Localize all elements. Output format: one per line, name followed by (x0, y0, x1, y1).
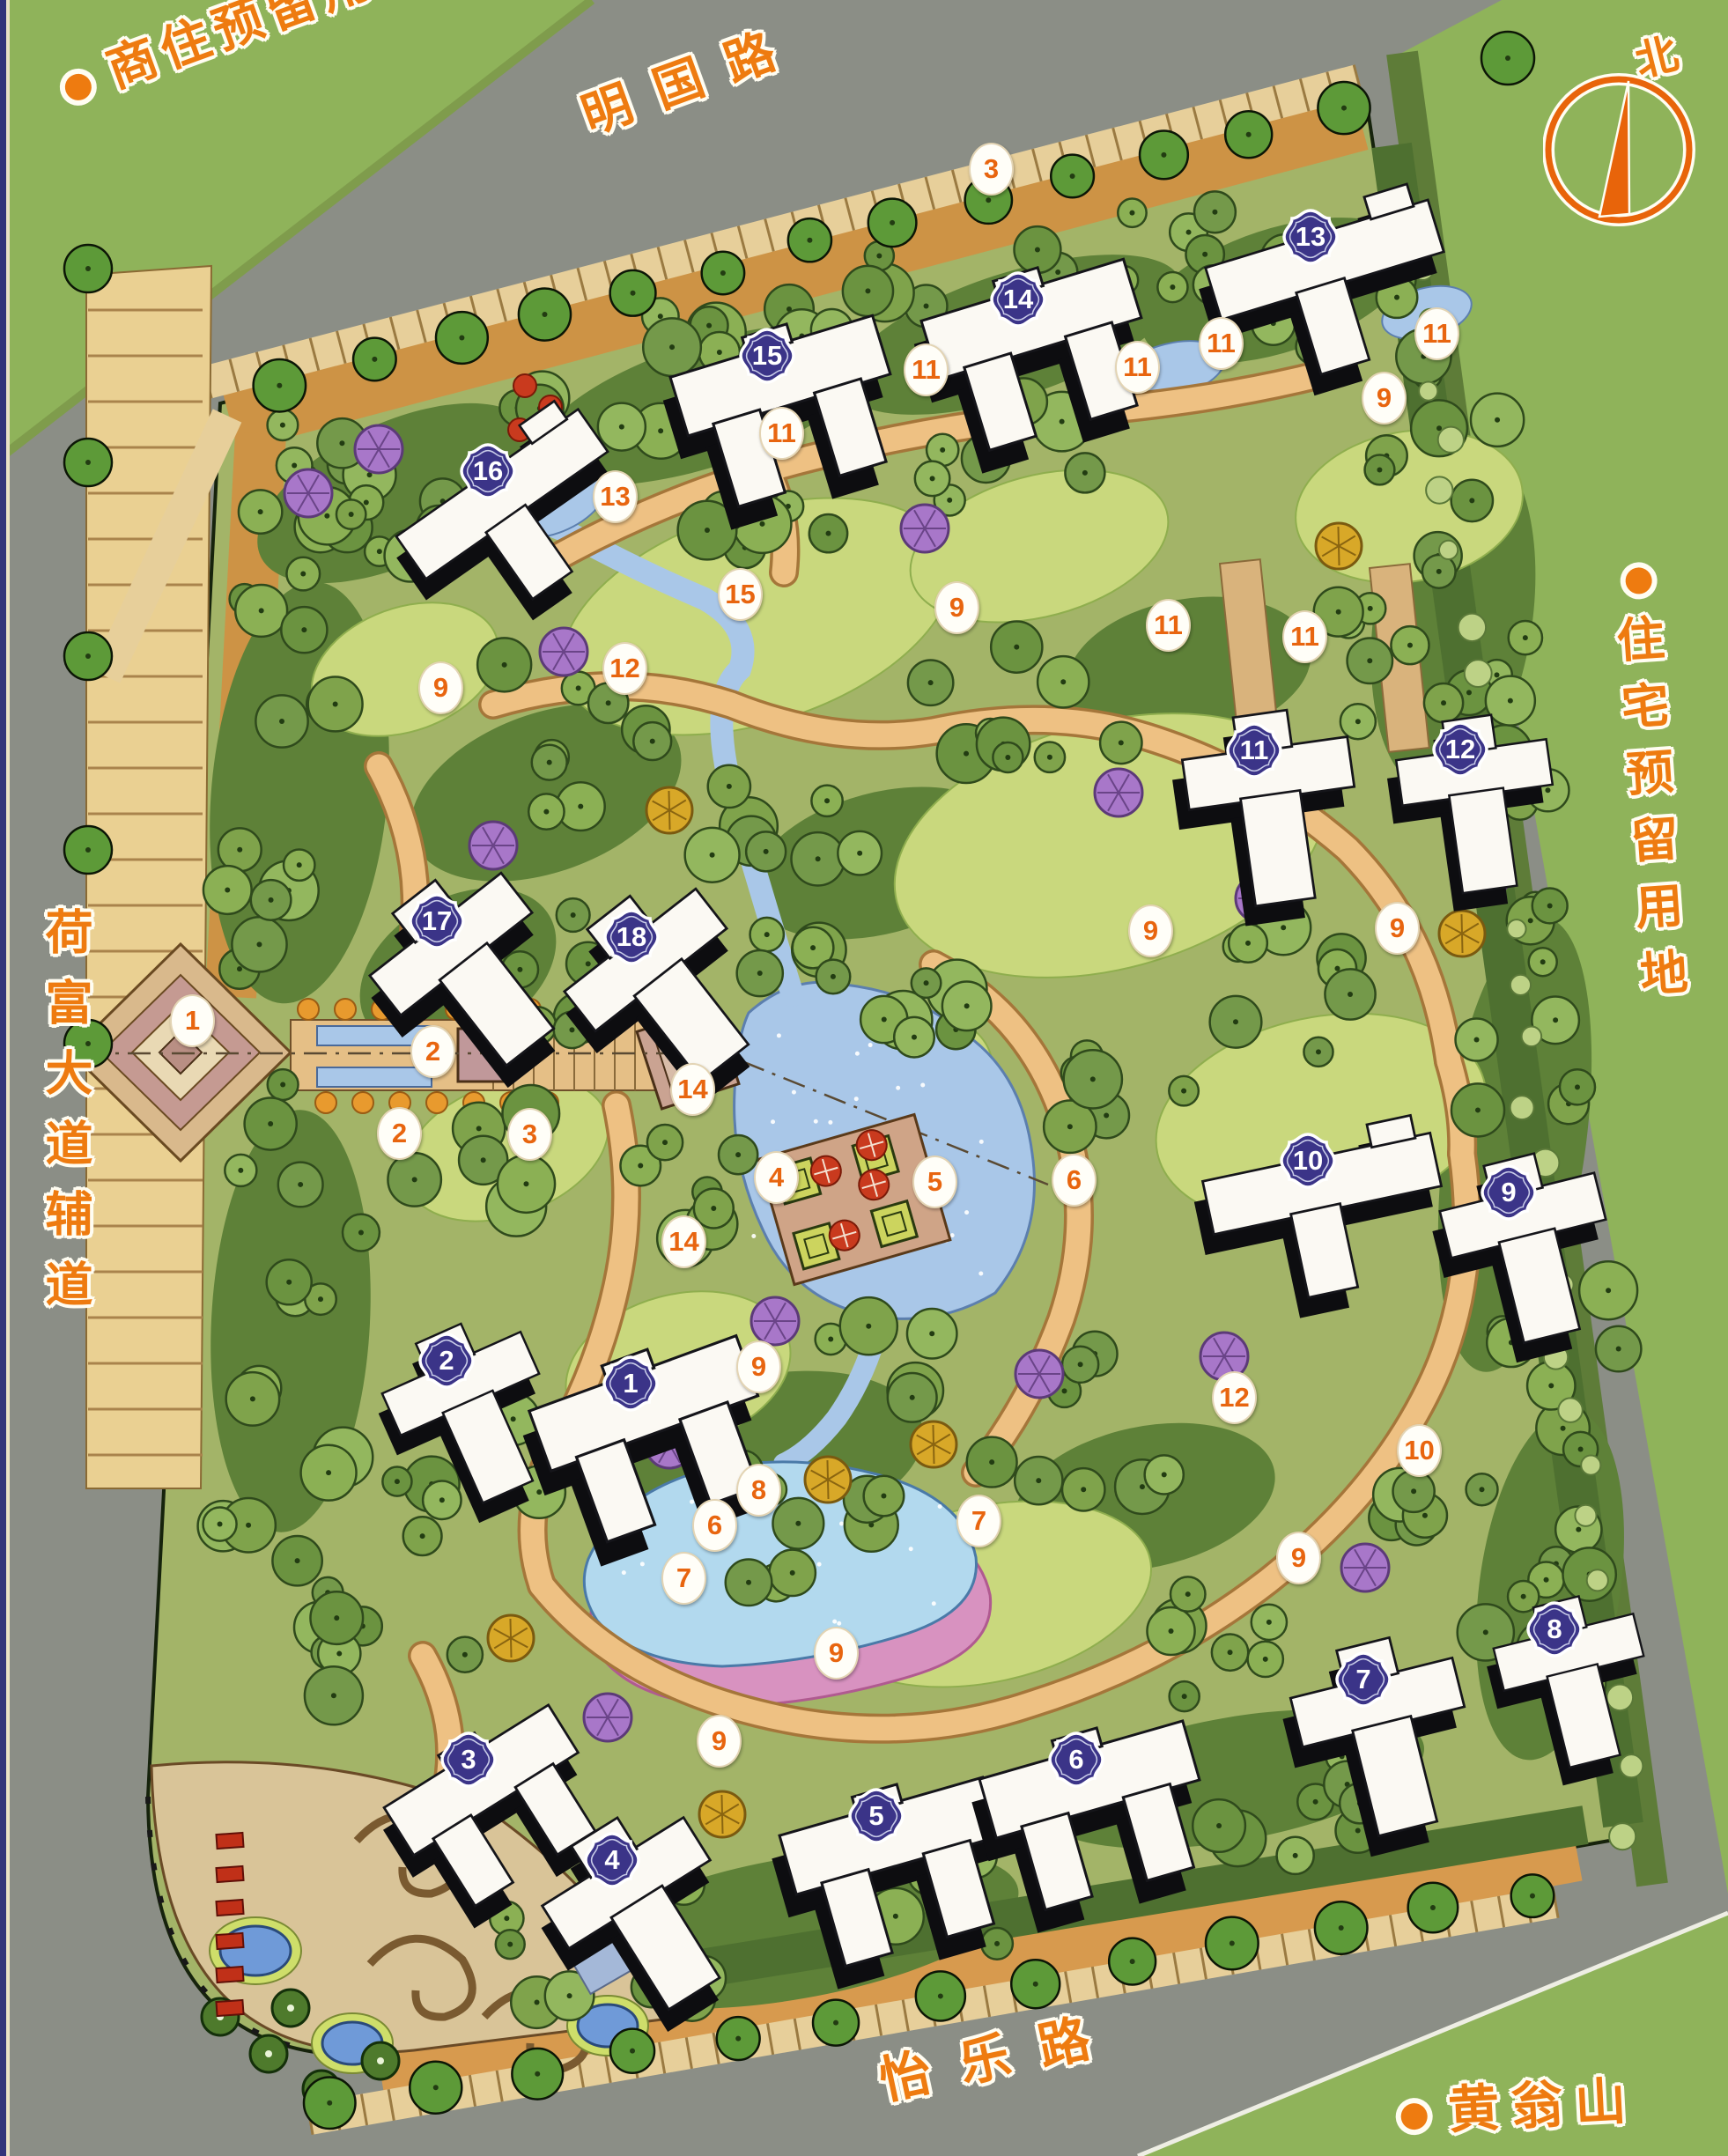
legend-callout-5: 5 (912, 1156, 957, 1208)
legend-callout-9: 9 (697, 1715, 742, 1768)
legend-callout-11: 11 (1282, 610, 1327, 663)
legend-callout-9: 9 (418, 661, 463, 714)
area-label-residential-reserve: 住宅预留用地 (1596, 557, 1697, 1017)
legend-callout-11: 11 (1115, 341, 1160, 394)
building-number: 2 (416, 1330, 477, 1392)
north-compass: 北 (1543, 19, 1702, 240)
building-number: 12 (1429, 719, 1491, 780)
building-badge-7: 7 (1333, 1649, 1394, 1710)
legend-callout-10: 10 (1397, 1424, 1442, 1477)
bullet-icon (1400, 2102, 1429, 2130)
building-badge-5: 5 (846, 1785, 907, 1847)
legend-callout-6: 6 (692, 1499, 737, 1552)
legend-callout-11: 11 (1414, 307, 1459, 360)
building-number: 14 (987, 269, 1049, 330)
building-number: 17 (406, 890, 468, 952)
building-badge-10: 10 (1277, 1130, 1339, 1192)
building-number: 5 (846, 1785, 907, 1847)
legend-callout-9: 9 (934, 581, 979, 634)
legend-callout-2: 2 (377, 1107, 422, 1160)
building-number: 16 (457, 440, 519, 502)
legend-callout-1: 1 (170, 994, 215, 1047)
scan-border (0, 0, 6, 2156)
legend-callout-15: 15 (718, 568, 763, 621)
area-label-commercial-reserve: 商住预留用地 (51, 0, 438, 118)
scan-border-inner (6, 0, 10, 2156)
site-plan-map: 商住预留用地 明国路 住宅预留用地 荷富大道辅道 怡乐路 黄翁山 北 1 2 3 (0, 0, 1728, 2156)
area-label-text: 商住预留用地 (100, 0, 436, 98)
building-badge-18: 18 (601, 906, 662, 968)
building-badge-3: 3 (438, 1729, 499, 1791)
building-number: 4 (581, 1829, 643, 1891)
legend-callout-13: 13 (593, 470, 638, 523)
legend-callout-3: 3 (507, 1108, 552, 1161)
legend-callout-12: 12 (602, 642, 647, 695)
building-badge-17: 17 (406, 890, 468, 952)
building-badge-12: 12 (1429, 719, 1491, 780)
building-badge-8: 8 (1524, 1599, 1585, 1660)
building-number: 11 (1223, 720, 1285, 781)
building-number: 6 (1045, 1729, 1107, 1791)
legend-callout-9: 9 (1375, 902, 1420, 955)
legend-callout-9: 9 (1128, 904, 1173, 957)
building-badge-14: 14 (987, 269, 1049, 330)
building-number: 13 (1280, 206, 1341, 268)
building-number: 3 (438, 1729, 499, 1791)
building-badge-15: 15 (736, 325, 798, 387)
legend-callout-14: 14 (670, 1063, 715, 1116)
legend-callout-9: 9 (736, 1340, 781, 1393)
building-badge-11: 11 (1223, 720, 1285, 781)
legend-callout-3: 3 (969, 143, 1014, 196)
legend-callout-8: 8 (736, 1464, 781, 1517)
building-badge-13: 13 (1280, 206, 1341, 268)
building-badge-2: 2 (416, 1330, 477, 1392)
label-overlay: 商住预留用地 明国路 住宅预留用地 荷富大道辅道 怡乐路 黄翁山 北 1 2 3 (0, 0, 1728, 2156)
building-number: 7 (1333, 1649, 1394, 1710)
road-label-north: 明国路 (571, 4, 809, 148)
road-label-south: 怡乐路 (872, 1991, 1125, 2115)
legend-callout-9: 9 (814, 1627, 859, 1680)
legend-callout-14: 14 (661, 1215, 706, 1268)
area-label-mountain: 黄翁山 (1399, 2059, 1640, 2145)
compass-dial-icon (1543, 19, 1702, 240)
legend-callout-9: 9 (1276, 1532, 1321, 1584)
bullet-icon (62, 70, 95, 104)
legend-callout-11: 11 (1199, 317, 1244, 370)
area-label-text: 黄翁山 (1447, 2072, 1640, 2139)
building-badge-6: 6 (1045, 1729, 1107, 1791)
building-badge-4: 4 (581, 1829, 643, 1891)
road-label-west: 荷富大道辅道 (30, 907, 100, 1330)
legend-callout-11: 11 (1146, 599, 1191, 652)
legend-callout-12: 12 (1212, 1371, 1257, 1424)
building-number: 10 (1277, 1130, 1339, 1192)
legend-callout-7: 7 (956, 1495, 1001, 1547)
building-number: 18 (601, 906, 662, 968)
area-label-text: 住宅预留用地 (1599, 612, 1697, 1017)
building-badge-16: 16 (457, 440, 519, 502)
legend-callout-2: 2 (410, 1025, 455, 1078)
legend-callout-7: 7 (661, 1552, 706, 1605)
bullet-icon (1624, 566, 1652, 594)
legend-callout-9: 9 (1362, 372, 1407, 425)
legend-callout-11: 11 (904, 343, 949, 396)
building-badge-9: 9 (1478, 1162, 1540, 1223)
building-number: 15 (736, 325, 798, 387)
legend-callout-6: 6 (1052, 1154, 1097, 1207)
legend-callout-4: 4 (754, 1151, 799, 1204)
building-number: 1 (600, 1353, 661, 1414)
building-badge-1: 1 (600, 1353, 661, 1414)
building-number: 9 (1478, 1162, 1540, 1223)
legend-callout-11: 11 (759, 407, 804, 460)
building-number: 8 (1524, 1599, 1585, 1660)
